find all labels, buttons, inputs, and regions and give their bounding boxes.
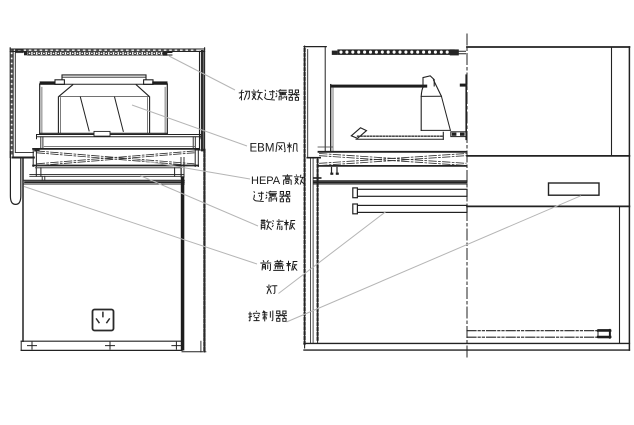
- svg-text:HEPA: HEPA: [251, 175, 281, 187]
- svg-text:EBM: EBM: [250, 142, 275, 154]
